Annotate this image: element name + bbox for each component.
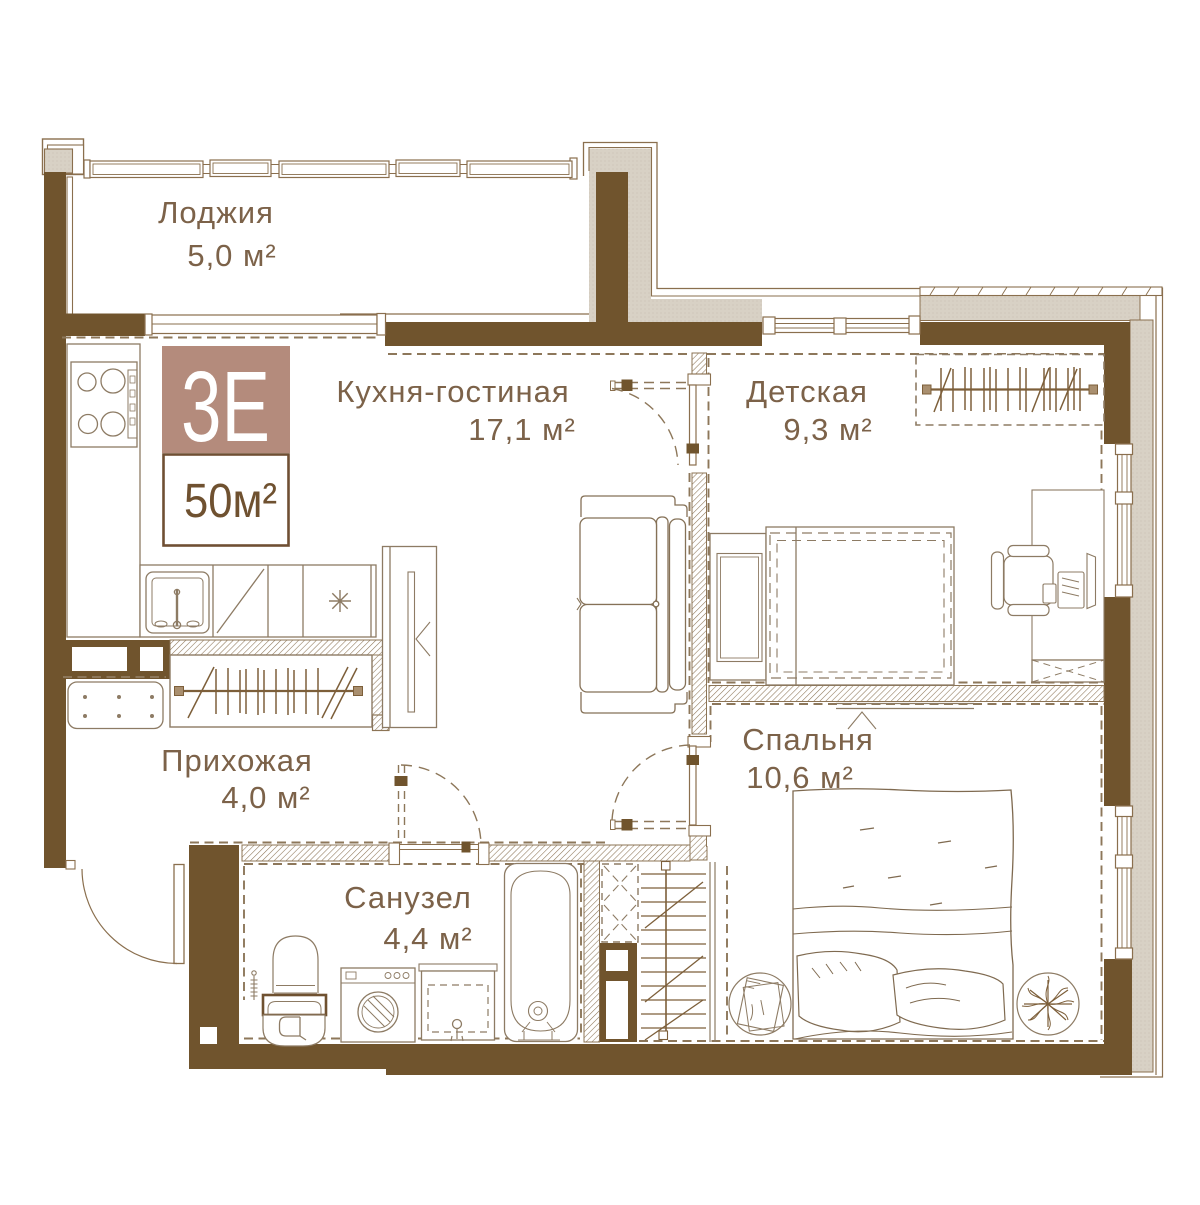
svg-text:Прихожая: Прихожая bbox=[161, 743, 313, 778]
svg-text:4,0 м²: 4,0 м² bbox=[221, 780, 310, 815]
svg-text:3Е: 3Е bbox=[181, 351, 270, 463]
svg-text:17,1 м²: 17,1 м² bbox=[468, 412, 576, 447]
svg-text:Кухня-гостиная: Кухня-гостиная bbox=[336, 374, 569, 409]
svg-text:Детская: Детская bbox=[746, 374, 868, 409]
svg-text:4,4 м²: 4,4 м² bbox=[383, 921, 472, 956]
svg-text:5,0 м²: 5,0 м² bbox=[187, 238, 276, 273]
svg-text:9,3 м²: 9,3 м² bbox=[783, 412, 872, 447]
svg-text:Лоджия: Лоджия bbox=[158, 195, 274, 230]
svg-text:Санузел: Санузел bbox=[344, 880, 472, 915]
svg-text:50м²: 50м² bbox=[184, 475, 277, 528]
svg-text:Спальня: Спальня bbox=[742, 722, 874, 757]
svg-text:10,6 м²: 10,6 м² bbox=[746, 760, 854, 795]
